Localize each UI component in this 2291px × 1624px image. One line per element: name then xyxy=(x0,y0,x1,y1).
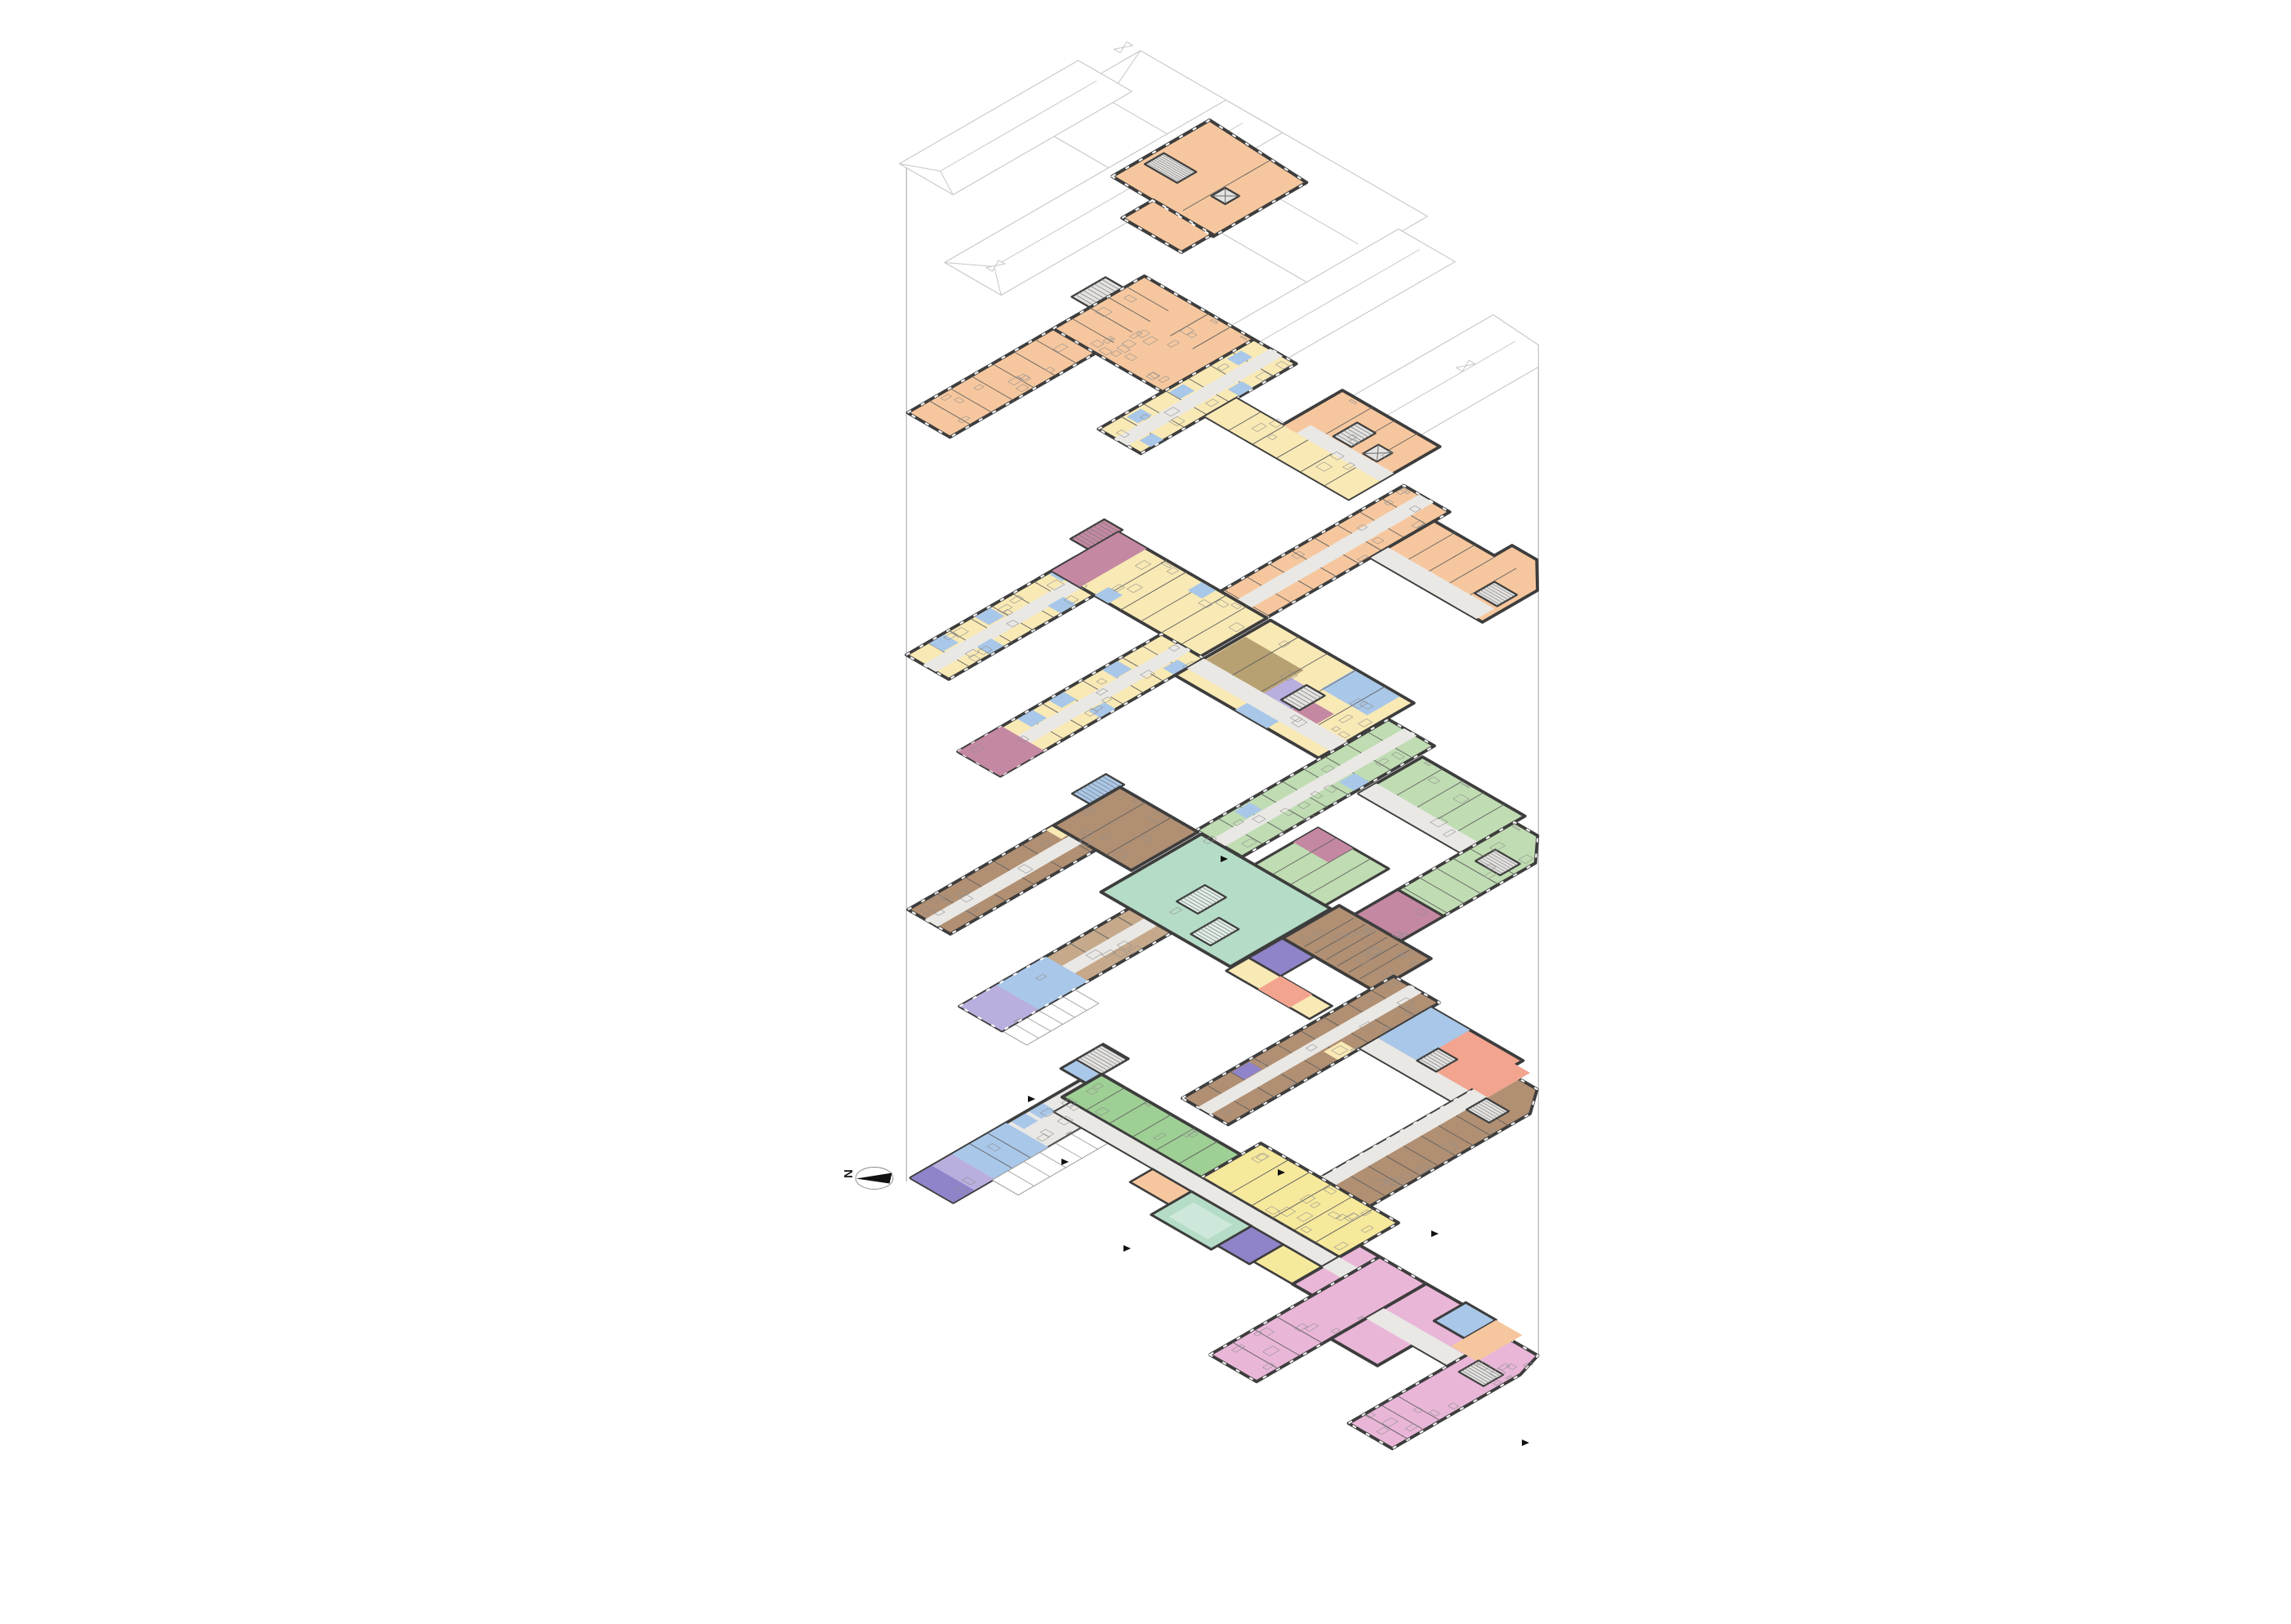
svg-text:N: N xyxy=(842,1169,856,1178)
